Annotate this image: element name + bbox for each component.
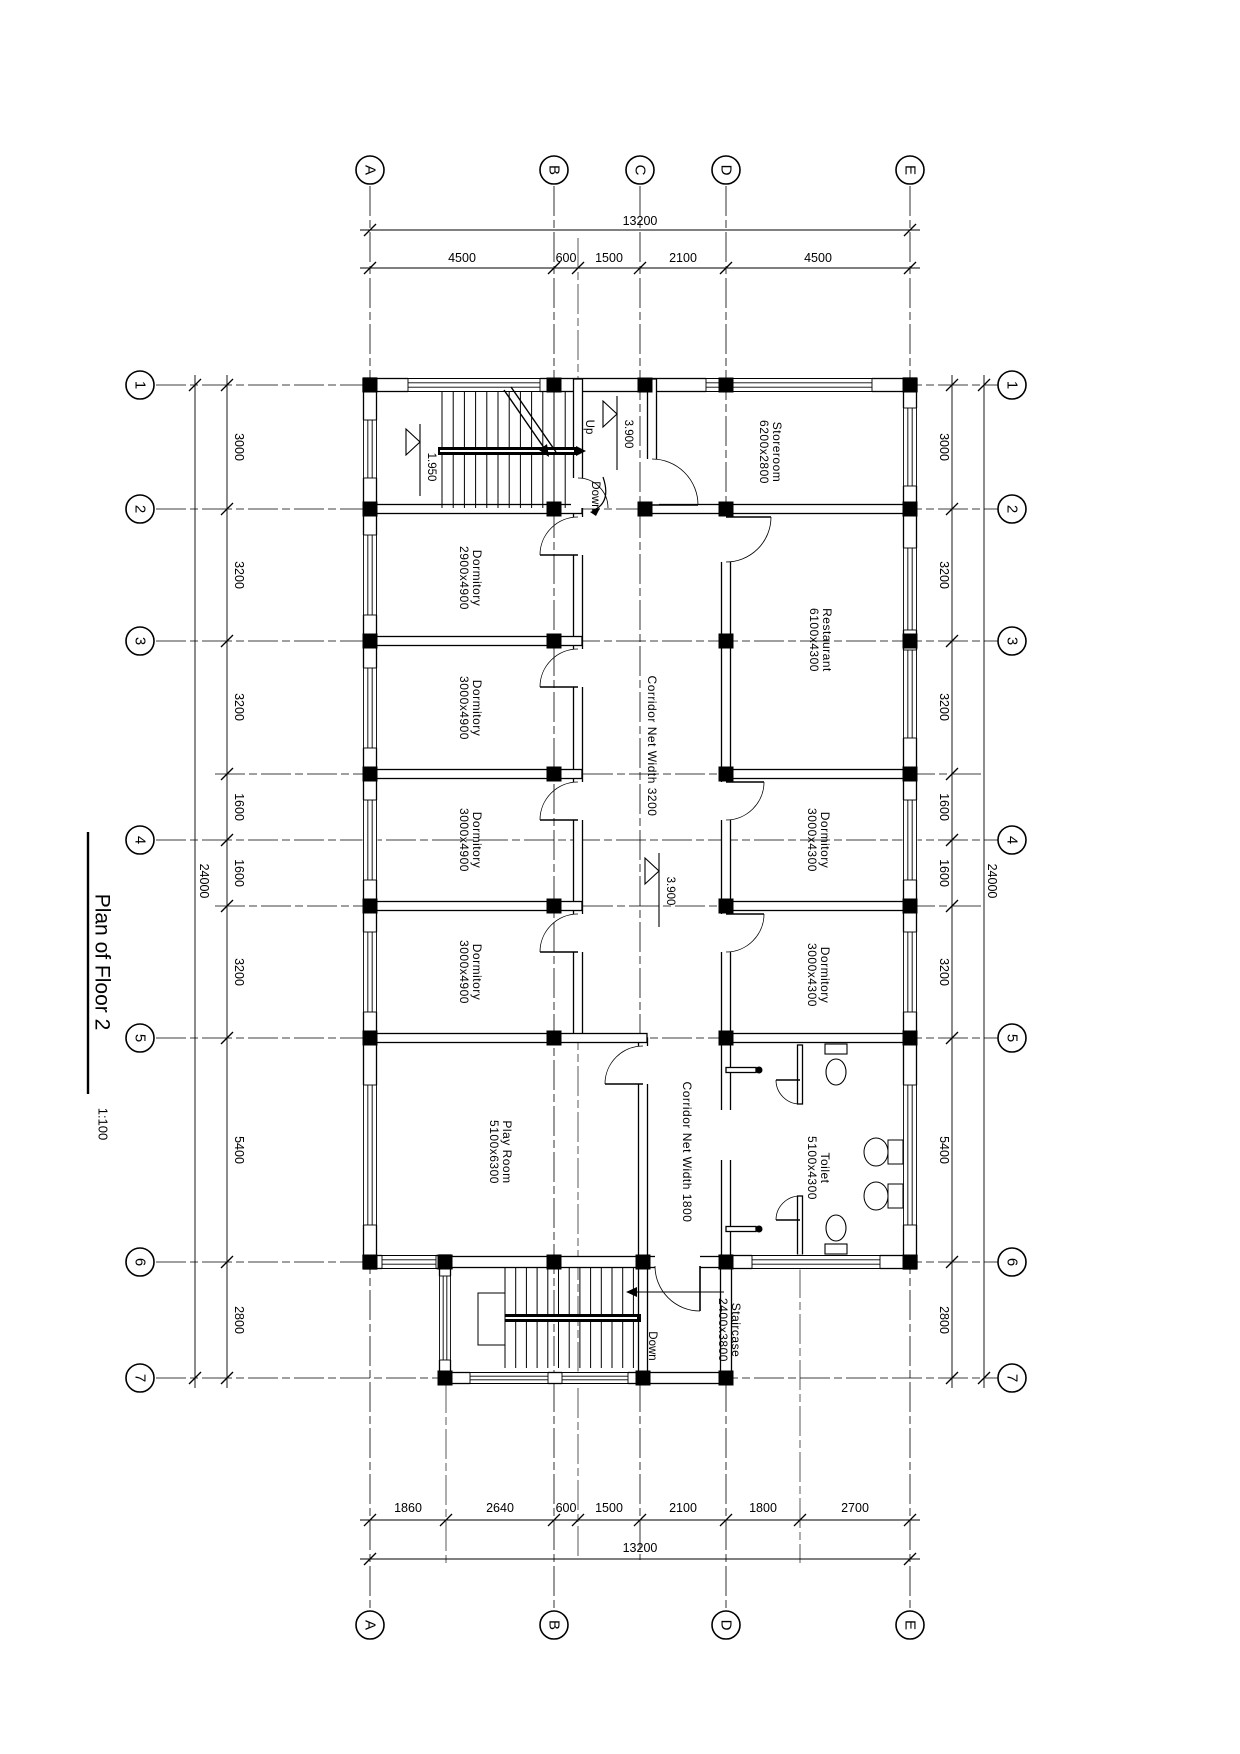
dims-bottom-1: 2640 [486,1501,514,1515]
grid-bubble-right-0: 1 [1004,381,1021,389]
grid-bubble-top-4: E [902,165,919,175]
dims-top-1: 600 [556,251,577,265]
grid-bubble-right-5: 6 [1004,1258,1021,1266]
grid-bubble-right-4: 5 [1004,1034,1021,1042]
grid-bubble-top-0: A [362,165,379,175]
grid-bubble-left-2: 3 [132,637,149,645]
room-label-toilet-name: Toilet [818,1152,832,1183]
drawing-sheet: ABCDEABDE1122334455667745006001500210045… [0,0,1240,1754]
room-label-restaurant-name: Restaurant [820,608,834,672]
room-label-storeroom-name: Storeroom [770,422,784,483]
room-label-dormitory_f-name: Dormitory [818,947,832,1004]
dim-side-total-right: 24000 [985,864,999,899]
grid-bubble-left-5: 6 [132,1258,149,1266]
grid-bubble-right-2: 3 [1004,637,1021,645]
room-label-dormitory_c-name: Dormitory [470,812,484,869]
dim-side-right-6: 5400 [937,1136,951,1164]
dims-top-2: 1500 [595,251,623,265]
grid-bubble-top-1: B [546,165,563,175]
grid-bubble-left-3: 4 [132,836,149,844]
dims-bottom-5: 1800 [749,1501,777,1515]
room-label-dormitory_c-size: 3000x4900 [457,808,471,872]
room-label-dormitory_d-size: 3000x4900 [457,940,471,1004]
dim-side-total-left: 24000 [197,864,211,899]
dims-top-0: 4500 [448,251,476,265]
dim-side-left-0: 3000 [232,433,246,461]
level-upper: 3.900 [622,420,634,449]
room-label-dormitory_a-size: 2900x4900 [457,546,471,610]
grid-bubble-left-4: 5 [132,1034,149,1042]
dim-side-right-3: 1600 [937,793,951,821]
grid-bubble-bottom-4: E [902,1620,919,1630]
dims-top-4: 4500 [804,251,832,265]
stair-up-label: Up [583,420,595,435]
grid-bubble-top-2: C [632,165,649,176]
grid-bubble-bottom-3: D [718,1620,735,1631]
room-label-dormitory_e-size: 3000x4300 [805,808,819,872]
dim-side-right-0: 3000 [937,433,951,461]
room-label-dormitory_f-size: 3000x4300 [805,943,819,1007]
grid-bubble-top-3: D [718,165,735,176]
dims-bottom-4: 2100 [669,1501,697,1515]
room-label-dormitory_b-name: Dormitory [470,680,484,737]
room-label-dormitory_a-name: Dormitory [470,550,484,607]
dim-side-left-3: 1600 [232,793,246,821]
dim-side-right-1: 3200 [937,561,951,589]
level-half: 1.950 [425,453,437,482]
grid-bubble-left-0: 1 [132,381,149,389]
dim-side-right-5: 3200 [937,958,951,986]
dims-bottom-3: 1500 [595,1501,623,1515]
dim-side-left-2: 3200 [232,693,246,721]
level-mid: 3.900 [664,877,676,906]
room-label-staircase-size: 2400x3800 [716,1298,730,1362]
title-scale: 1:100 [96,1108,111,1141]
grid-bubble-right-1: 2 [1004,505,1021,513]
room-label-dormitory_d-name: Dormitory [470,944,484,1001]
dims-bottom-2: 600 [556,1501,577,1515]
grid-bubble-bottom-0: A [362,1620,379,1630]
dims-bottom-6: 2700 [841,1501,869,1515]
floor-plan-drawing: ABCDEABDE1122334455667745006001500210045… [0,0,1240,1754]
corridor-secondary-label: Corridor Net Width 1800 [680,1082,694,1223]
dims-bottom_total: 13200 [623,1541,658,1555]
stair-down-bottom-label: Down [646,1331,658,1360]
grid-bubble-right-3: 4 [1004,836,1021,844]
grid-bubble-left-1: 2 [132,505,149,513]
page-title: Plan of Floor 2 [91,894,114,1031]
sanitary-fixtures [825,1044,903,1254]
room-label-staircase-name: Staircase [729,1303,743,1358]
room-label-storeroom-size: 6200x2800 [757,420,771,484]
dim-side-left-4: 1600 [232,859,246,887]
corridor-main-label: Corridor Net Width 3200 [645,676,659,817]
dims-bottom-0: 1860 [394,1501,422,1515]
stair-down-top-label: Down [589,481,601,510]
dim-side-left-5: 3200 [232,958,246,986]
dim-side-left-7: 2800 [232,1306,246,1334]
grid-bubble-left-6: 7 [132,1374,149,1382]
dims-top_total: 13200 [623,214,658,228]
room-label-play_room-name: Play Room [500,1120,514,1183]
room-label-restaurant-size: 6100x4300 [807,608,821,672]
room-label-dormitory_e-name: Dormitory [818,812,832,869]
dim-side-right-2: 3200 [937,693,951,721]
dim-side-right-4: 1600 [937,859,951,887]
room-label-dormitory_b-size: 3000x4900 [457,676,471,740]
grid-bubble-bottom-1: B [546,1620,563,1630]
dims-top-3: 2100 [669,251,697,265]
dim-side-right-7: 2800 [937,1306,951,1334]
dim-side-left-1: 3200 [232,561,246,589]
dim-side-left-6: 5400 [232,1136,246,1164]
room-label-play_room-size: 5100x6300 [487,1120,501,1184]
grid-bubble-right-6: 7 [1004,1374,1021,1382]
room-label-toilet-size: 5100x4300 [805,1136,819,1200]
